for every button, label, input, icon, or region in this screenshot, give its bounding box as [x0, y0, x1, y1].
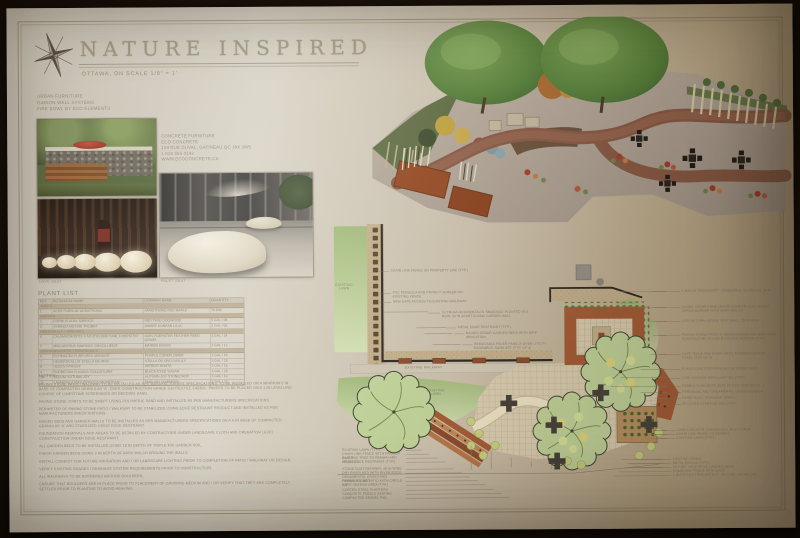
- landscape-plan-drawing: [320, 214, 796, 487]
- notes-section: NOTES PAVING STONE PATIO / WALKWAY TO BE…: [39, 372, 299, 495]
- plant-list: PLANT LIST KEY BOTANICAL NAME COMMON NAM…: [38, 288, 245, 386]
- photo2-person-shirt: [98, 229, 110, 242]
- note-paragraph: PAVING STONE PATIO / WALKWAY TO BE INSTA…: [39, 381, 298, 397]
- note-paragraph: PAVING STONE JOINTS TO BE SWEPT USING PO…: [39, 398, 298, 404]
- perspective-rendering: [366, 16, 795, 225]
- text-line: ECO CONCRETE: [161, 139, 251, 145]
- plant-list-header: KEY BOTANICAL NAME COMMON NAME QUANTITY: [39, 298, 244, 305]
- egg-seat: [57, 255, 76, 269]
- poster-board: NATURE INSPIRED: [6, 4, 795, 533]
- note-paragraph: FINISH GARDEN BEDS USING 3 IN DEPTH OF B…: [39, 450, 298, 456]
- plant-group: TREES1ACER RUBRUM 'ARMSTRONG'ARMSTRONG R…: [39, 303, 244, 314]
- plant-row: 1ACER RUBRUM 'ARMSTRONG'ARMSTRONG RED MA…: [39, 308, 244, 315]
- egg-seat: [94, 252, 121, 271]
- board-subtitle: OTTAWA, ON SCALE 1/8" = 1': [82, 70, 178, 77]
- plan-callout: CORTEN STEEL PLANTERS: [342, 487, 494, 492]
- notes-title: NOTES: [39, 372, 298, 379]
- plant-section-band: SHRUBS: [39, 313, 244, 319]
- egg-seat: [42, 257, 58, 268]
- photo-gabion-fire-bench: [37, 118, 156, 196]
- plant-group: GROUNDCOVERS / PERENNIALS6ECHINACEA PURP…: [39, 348, 244, 386]
- plant-row: 5MISCANTHUS SINENSIS 'GRACILLIMUS'MAIDEN…: [39, 343, 244, 350]
- note-paragraph: RAISED BEDS AND GARDEN WALLS TO BE INSTA…: [39, 418, 298, 429]
- text-line: GABION WALL SYSTEMS: [37, 99, 110, 106]
- note-paragraph: PERIMETER OF PAVING STONE PATIO / WALKWA…: [39, 405, 298, 416]
- photo3-pebble-bench-far: [245, 216, 282, 229]
- egg-seat: [74, 254, 97, 270]
- text-line: FIRE BOWL BY ECO ELEMENTS: [37, 105, 110, 112]
- photo3-caption: PALET SEAT: [161, 279, 186, 283]
- plan-inline-labels: EXISTING LAWNEXISTING LAWNEXISTING LAWNE…: [6, 4, 792, 9]
- urban-furniture-credit: URBAN FURNITUREGABION WALL SYSTEMSFIRE B…: [37, 93, 110, 112]
- plant-section-band: TREES: [39, 303, 244, 309]
- text-line: 1 819 555 0142: [161, 150, 251, 156]
- text-line: CONCRETE FURNITURE: [161, 133, 251, 139]
- compass-rose-icon: [31, 29, 77, 81]
- leader-line: [406, 489, 494, 490]
- egg-seat: [120, 251, 152, 273]
- photo2-caption: LOVE SEAT: [39, 280, 62, 284]
- plant-row: 8HOSTA 'PATRIOT'PATRIOT HOSTA1 GAL / 16: [39, 364, 244, 371]
- photo1-wood-bench: [46, 163, 108, 180]
- concrete-furniture-credit: CONCRETE FURNITUREECO CONCRETE104 RUE DU…: [161, 133, 251, 162]
- plant-row: 3SYRINGA MEYERI 'PALIBIN'DWARF KOREAN LI…: [39, 323, 244, 330]
- note-paragraph: INSTALL CONDUIT FOR FUTURE IRRIGATION AN…: [39, 457, 298, 463]
- note-paragraph: ALL WALKWAYS TO BE BORDERED AROUND BOULD…: [39, 473, 298, 479]
- notes-body: PAVING STONE PATIO / WALKWAY TO BE INSTA…: [39, 381, 299, 492]
- col-key: KEY: [39, 299, 52, 304]
- plant-list-body: TREES1ACER RUBRUM 'ARMSTRONG'ARMSTRONG R…: [39, 303, 244, 386]
- plan-callouts: CHAIN LINK FENCE ON PROPERTY LINE (TYP.)…: [6, 4, 792, 9]
- plant-row: 4CALAMAGROSTIS X ACUTIFLORA 'KARL FOERST…: [39, 334, 244, 345]
- text-line: 104 RUE DUVAL, GATINEAU QC J8X 2W5: [161, 144, 251, 150]
- plant-group: SHRUBS2CORNUS ALBA 'SIBIRICA'RED TWIG DO…: [39, 313, 244, 330]
- note-paragraph: VERIFY EXISTING GRADES / DRAINAGE SYSTEM…: [39, 465, 298, 471]
- plan-callout: COMPACTED GRAVEL PAD: [342, 495, 510, 500]
- plant-row: 2CORNUS ALBA 'SIBIRICA'RED TWIG DOGWOOD5…: [39, 318, 244, 325]
- note-paragraph: ENSURE THAT BOULDERS ARE IN PLACE PRIOR …: [39, 480, 298, 491]
- plant-row: 11LAVANDULA ANGUSTIFOLIA 'MUNSTEAD'ENGLI…: [39, 380, 244, 387]
- plant-list-table: KEY BOTANICAL NAME COMMON NAME QUANTITY …: [38, 297, 245, 386]
- note-paragraph: FOUNDATION REMOVALS AND AREAS TO BE DETA…: [39, 430, 298, 441]
- plant-section-band: GROUNDCOVERS / PERENNIALS: [39, 348, 244, 354]
- text-line: URBAN FURNITURE: [37, 93, 110, 100]
- plant-section-band: PERENNIALS / GRASSES: [39, 329, 244, 335]
- plant-list-title: PLANT LIST: [38, 288, 244, 296]
- col-quantity: QUANTITY: [210, 298, 244, 303]
- photo-pebble-concrete-bench: [159, 173, 313, 278]
- leader-line: [406, 493, 502, 494]
- plant-group: PERENNIALS / GRASSES4CALAMAGROSTIS X ACU…: [39, 329, 244, 350]
- photo1-fire-bowl: [73, 140, 106, 149]
- col-common: COMMON NAME: [143, 298, 210, 303]
- plant-row: 9RUDBECKIA FULGIDA 'GOLDSTURM'BLACK-EYED…: [39, 369, 244, 376]
- plant-row: 6ECHINACEA PURPUREA 'MAGNUS'PURPLE CONEF…: [39, 353, 244, 360]
- plant-row: 7HEMEROCALLIS 'STELLA DE ORO'STELLA DE O…: [39, 358, 244, 365]
- photo-night-egg-seats: [38, 198, 157, 278]
- plant-row: 10SEDUM 'AUTUMN JOY'AUTUMN JOY STONECROP…: [39, 374, 244, 381]
- text-line: WWW.ECOCONCRETE.CA: [161, 156, 251, 162]
- leader-line: [406, 497, 510, 498]
- photo3-street-tree: [279, 175, 313, 211]
- photo1-foreground-grass: [37, 183, 156, 196]
- photographed-presentation-board: NATURE INSPIRED: [0, 0, 800, 538]
- note-paragraph: ALL GARDEN BEDS TO BE INSTALLED USING 18…: [39, 442, 298, 448]
- board-title: NATURE INSPIRED: [80, 35, 373, 61]
- plan-callout: CONCRETE PEBBLE SEATING: [342, 491, 502, 496]
- col-botanical: BOTANICAL NAME: [52, 299, 143, 304]
- title-rule-2: [79, 65, 359, 68]
